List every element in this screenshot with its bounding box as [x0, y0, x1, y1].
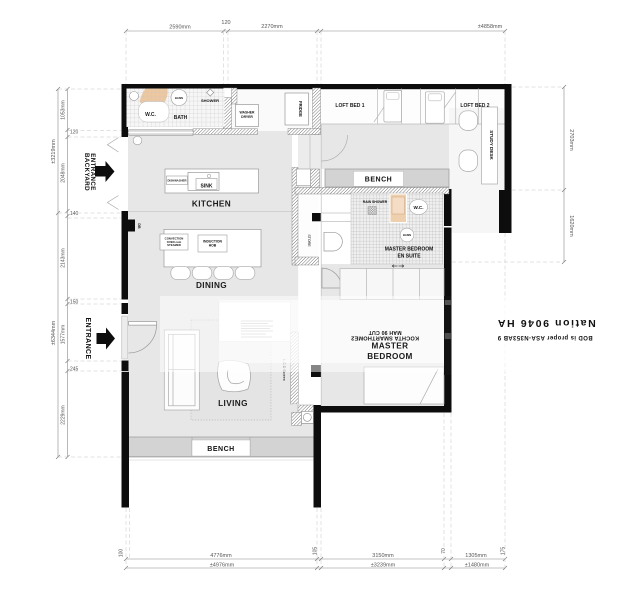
svg-text:RAIN SHOWER: RAIN SHOWER: [363, 200, 388, 204]
svg-text:STEAMER: STEAMER: [167, 243, 181, 247]
svg-text:±6344mm: ±6344mm: [51, 320, 57, 345]
svg-text:BEDROOM: BEDROOM: [367, 352, 413, 361]
svg-text:±4858mm: ±4858mm: [478, 24, 503, 30]
svg-text:FRIDGE: FRIDGE: [298, 101, 303, 117]
svg-text:175: 175: [501, 547, 507, 556]
svg-text:EN SUITE: EN SUITE: [397, 254, 421, 260]
svg-text:DINING: DINING: [196, 281, 227, 290]
svg-text:2048mm: 2048mm: [61, 163, 67, 182]
svg-text:LOFT BED 2: LOFT BED 2: [460, 103, 489, 109]
svg-text:BENCH: BENCH: [207, 446, 234, 453]
svg-text:ENTRANCE: ENTRANCE: [89, 153, 96, 191]
svg-text:2229mm: 2229mm: [61, 405, 67, 424]
svg-text:4776mm: 4776mm: [210, 553, 232, 559]
svg-text:LOFT BED 1: LOFT BED 1: [335, 103, 364, 109]
svg-text:DISHWASHER: DISHWASHER: [168, 179, 187, 183]
svg-text:BENCH: BENCH: [365, 177, 392, 184]
svg-text:WASHER: WASHER: [240, 111, 255, 115]
svg-text:140: 140: [70, 211, 79, 217]
svg-text:Nation 9046 HA: Nation 9046 HA: [496, 317, 595, 329]
svg-text:245: 245: [70, 367, 79, 373]
svg-text:3150mm: 3150mm: [372, 553, 394, 559]
svg-text:DRYER: DRYER: [241, 115, 253, 119]
svg-text:BACKYARD: BACKYARD: [83, 153, 90, 191]
svg-text:W.C.: W.C.: [145, 112, 156, 118]
svg-text:1053mm: 1053mm: [61, 100, 67, 119]
svg-text:105: 105: [313, 547, 319, 556]
svg-text:1620mm: 1620mm: [568, 215, 574, 237]
svg-text:2143mm: 2143mm: [61, 248, 67, 267]
svg-text:DB: DB: [137, 223, 141, 229]
svg-text:2703mm: 2703mm: [568, 129, 574, 151]
svg-text:MASTER BEDROOM: MASTER BEDROOM: [385, 247, 434, 253]
svg-text:MAH 90 CUT: MAH 90 CUT: [368, 329, 402, 335]
svg-text:120: 120: [221, 20, 230, 26]
svg-text:MASTER: MASTER: [372, 342, 409, 351]
svg-text:SHOWER: SHOWER: [201, 98, 219, 103]
svg-text:LIVING: LIVING: [218, 399, 248, 408]
svg-text:ENTRANCE: ENTRANCE: [84, 317, 91, 359]
svg-text:2590mm: 2590mm: [169, 25, 191, 31]
svg-text:100: 100: [119, 549, 125, 558]
svg-text:STORE: STORE: [307, 234, 311, 247]
svg-text:1577mm: 1577mm: [61, 325, 67, 344]
svg-text:STUDY DESK: STUDY DESK: [489, 130, 494, 160]
svg-text:±3239mm: ±3239mm: [371, 563, 396, 569]
svg-text:±3219mm: ±3219mm: [51, 139, 57, 164]
svg-text:±1480mm: ±1480mm: [465, 563, 490, 569]
svg-text:150: 150: [70, 300, 79, 306]
svg-text:BASIN: BASIN: [175, 96, 183, 100]
svg-text:1305mm: 1305mm: [465, 553, 487, 559]
svg-text:HOB: HOB: [209, 244, 217, 248]
svg-text:BASIN: BASIN: [403, 233, 411, 237]
svg-text:W.C.: W.C.: [414, 205, 424, 210]
svg-text:SINK: SINK: [201, 184, 213, 190]
svg-text:BOD is proper ASA-N353AB 9: BOD is proper ASA-N353AB 9: [497, 334, 592, 340]
svg-text:BATH: BATH: [174, 115, 188, 121]
svg-text:KITCHEN: KITCHEN: [192, 200, 231, 209]
svg-text:±4976mm: ±4976mm: [210, 563, 235, 569]
svg-text:2270mm: 2270mm: [261, 24, 283, 30]
